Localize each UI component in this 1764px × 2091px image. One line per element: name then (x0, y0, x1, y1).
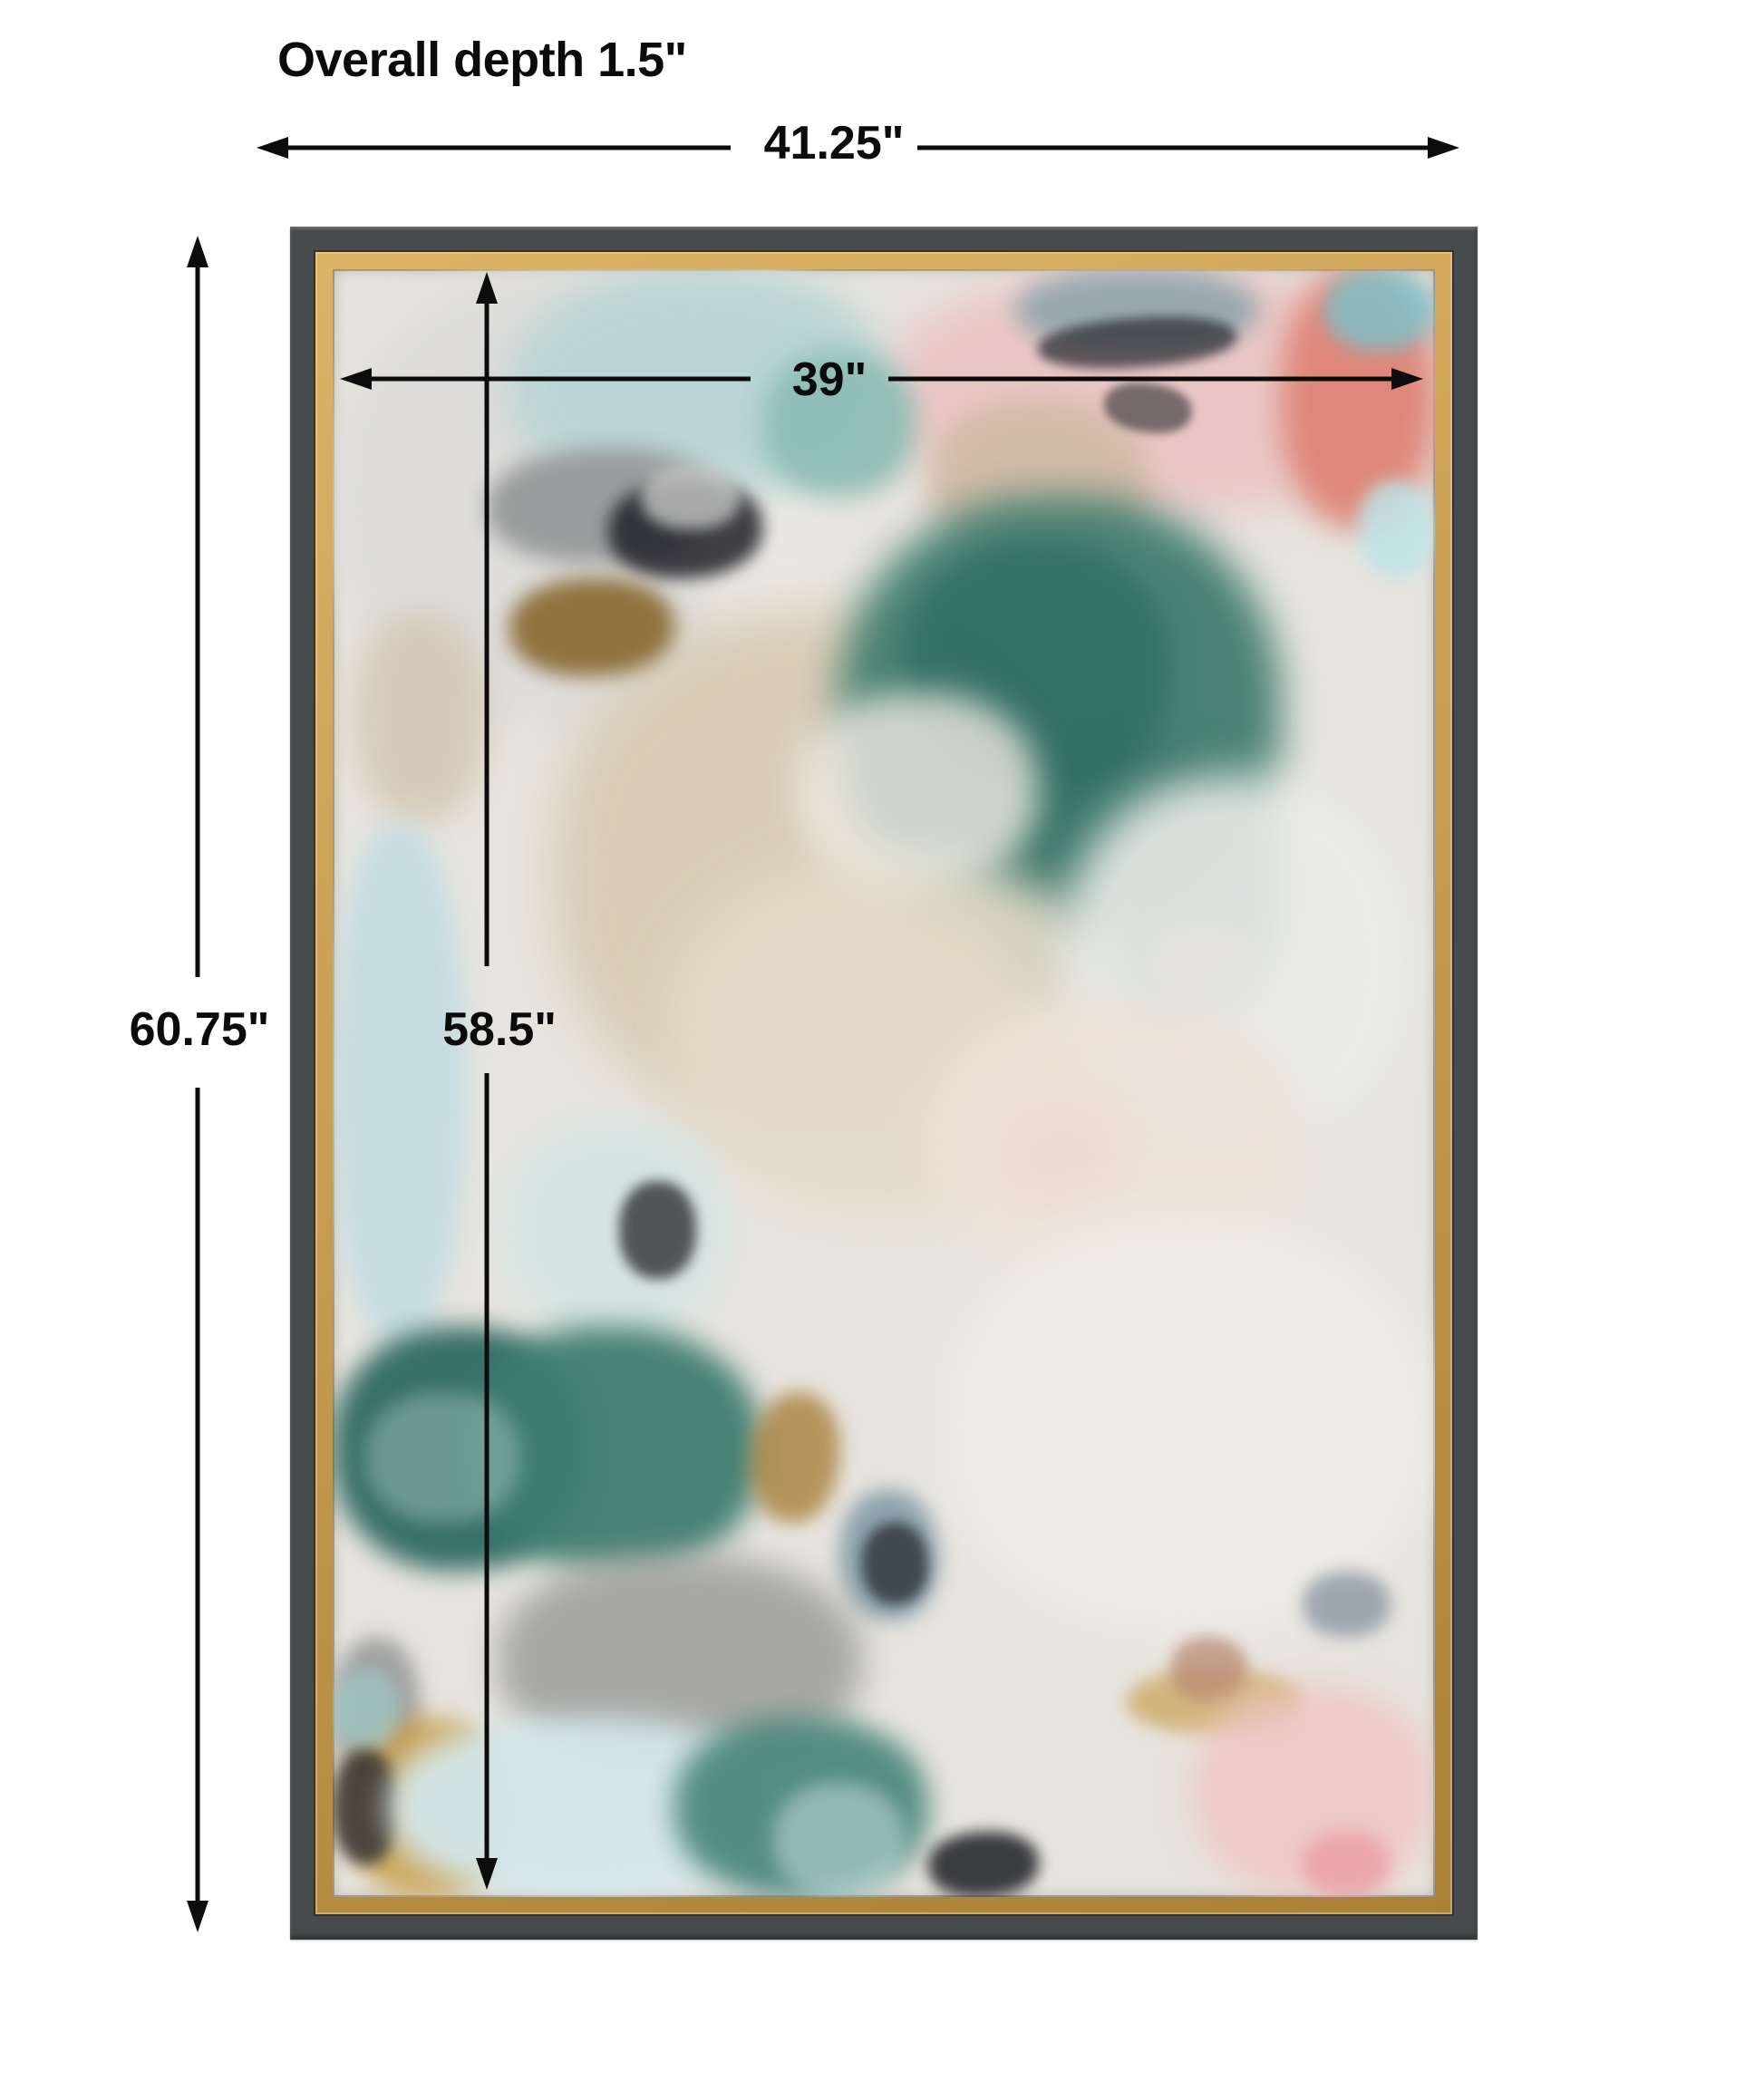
paint-patch (354, 611, 487, 822)
paint-patch (333, 823, 465, 1344)
inner-height-label: 58.5" (442, 1006, 557, 1053)
paint-patch (796, 692, 1039, 888)
paint-patch (926, 1829, 1040, 1897)
paint-patch (862, 1523, 928, 1604)
paint-patch (1358, 480, 1435, 578)
outer-width-arrow-left (257, 137, 288, 159)
outer-width-arrow-right (1428, 137, 1459, 159)
outer-width-label: 41.25" (764, 120, 905, 167)
picture-frame-gold-lip (315, 252, 1452, 1914)
paint-patch (641, 465, 740, 530)
paint-patch (619, 1181, 696, 1279)
artwork-canvas (333, 269, 1435, 1897)
paint-patch (1303, 1832, 1391, 1897)
inner-width-label: 39" (792, 356, 867, 403)
outer-height-arrow-top (187, 236, 208, 267)
outer-height-label: 60.75" (130, 1006, 270, 1053)
paint-patch (1170, 1637, 1247, 1702)
picture-frame-outer (290, 227, 1478, 1940)
paint-patch (365, 1392, 519, 1523)
paint-patch (333, 1670, 399, 1751)
paint-patch (745, 1389, 847, 1527)
paint-patch (773, 1783, 906, 1897)
paint-patch (1324, 269, 1435, 351)
paint-patch (994, 1099, 1127, 1214)
paint-patch (1303, 1572, 1391, 1637)
overall-depth-label: Overall depth 1.5" (277, 34, 687, 86)
outer-height-arrow-bottom (187, 1901, 208, 1932)
product-dimension-diagram: Overall depth 1.5" 41.25" 39" 60.75" 58.… (0, 0, 1764, 2091)
